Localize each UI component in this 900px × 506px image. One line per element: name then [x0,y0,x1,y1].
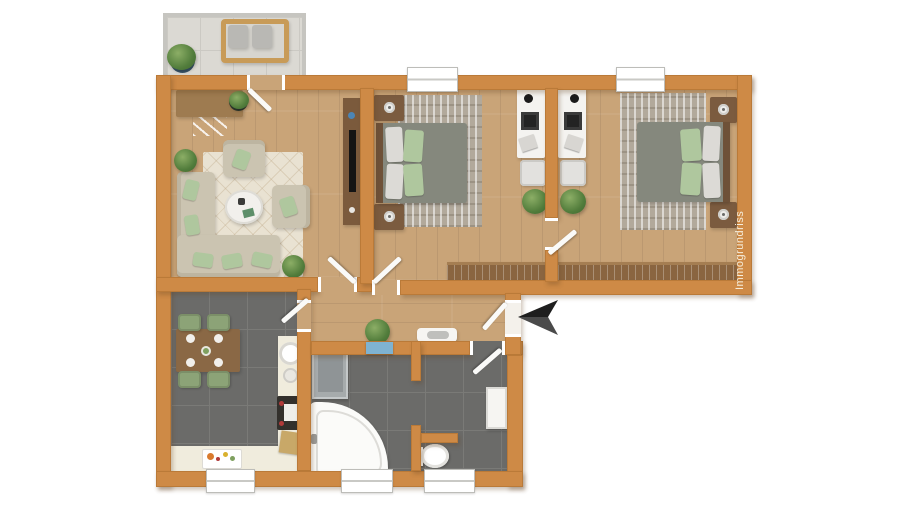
table-centerpiece [201,346,211,356]
food-item [223,452,228,457]
bathtub-faucet [311,434,317,444]
window [341,469,393,493]
wall [156,277,318,292]
food-item [230,456,235,461]
towel-shelf [366,342,393,354]
dining-chair [207,314,230,331]
watermark-text: Immogrundriss [734,192,752,308]
sofa-pillow [192,252,214,269]
window [206,469,255,493]
bed-pillow-white [702,163,721,199]
window [407,67,458,92]
wall [545,250,558,282]
bed-headboard [376,123,383,203]
dining-chair [207,371,230,388]
plate [214,358,223,367]
washing-machine-door [318,355,343,392]
wall [360,88,374,284]
entrance-arrow-icon [518,298,560,338]
bed-pillow-green [403,129,424,162]
wall [545,88,558,218]
bed-headboard [723,122,730,202]
plate [214,334,223,343]
wall-bath-divider [411,341,421,381]
balcony-door-opening [247,75,285,90]
bedroom2-plant [560,189,586,214]
balcony-chair [228,25,248,48]
desk-lamp [524,94,533,103]
wall [507,355,523,487]
bed-pillow-white [385,127,404,163]
nightstand-lamp [384,211,395,222]
kitchen-sink-small [283,368,298,383]
wall-toilet-nook [421,433,458,443]
hallway-floor [311,291,507,342]
wall-toilet-nook [411,425,421,471]
sideboard-deco [349,207,355,213]
dining-chair [178,371,201,388]
bench-cushion [427,331,449,339]
desk-chair [560,160,586,186]
food-item [207,453,214,460]
toilet-bowl [421,444,449,468]
bed-pillow-green [680,162,702,195]
stove-knob [279,401,284,406]
stove-knob [279,421,284,426]
laptop [521,112,539,130]
coffee-table [225,190,263,224]
food-item [216,457,220,461]
nightstand-lamp [384,102,395,113]
plate [186,334,195,343]
coffee-table-deco [238,198,245,205]
bed-pillow-green [403,163,424,196]
desk-chair [520,160,546,186]
desk-lamp [570,94,579,103]
bed-pillow-green [680,128,702,161]
plate [186,358,195,367]
bed-pillow-white [702,126,721,162]
sideboard-deco [348,112,355,119]
sofa-pillow [184,214,201,236]
wall [400,280,752,295]
laptop [564,112,582,130]
console-plant [229,91,249,109]
bathroom-cabinet [486,387,507,429]
window [616,67,665,92]
nightstand-lamp [718,104,729,115]
window [424,469,475,493]
balcony-plant [167,44,196,70]
floor-plan: Immogrundriss [0,0,900,506]
balcony-chair [252,25,272,48]
living-plant [282,255,305,278]
living-plant [174,149,197,172]
nightstand-lamp [718,209,729,220]
bed-pillow-white [385,164,404,200]
tv [349,130,356,192]
dining-chair [178,314,201,331]
